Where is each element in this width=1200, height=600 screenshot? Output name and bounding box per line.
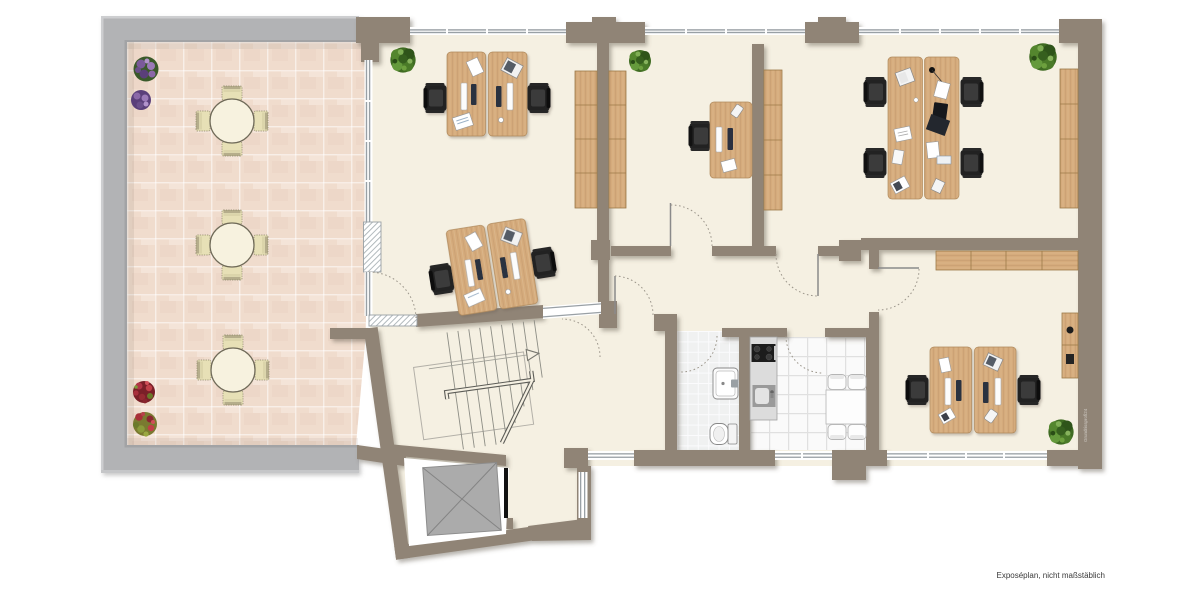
svg-text:Exposéplan, nicht maßstäblich: Exposéplan, nicht maßstäblich	[997, 571, 1106, 580]
svg-text:Grundrissprofi24: Grundrissprofi24	[1083, 408, 1088, 442]
